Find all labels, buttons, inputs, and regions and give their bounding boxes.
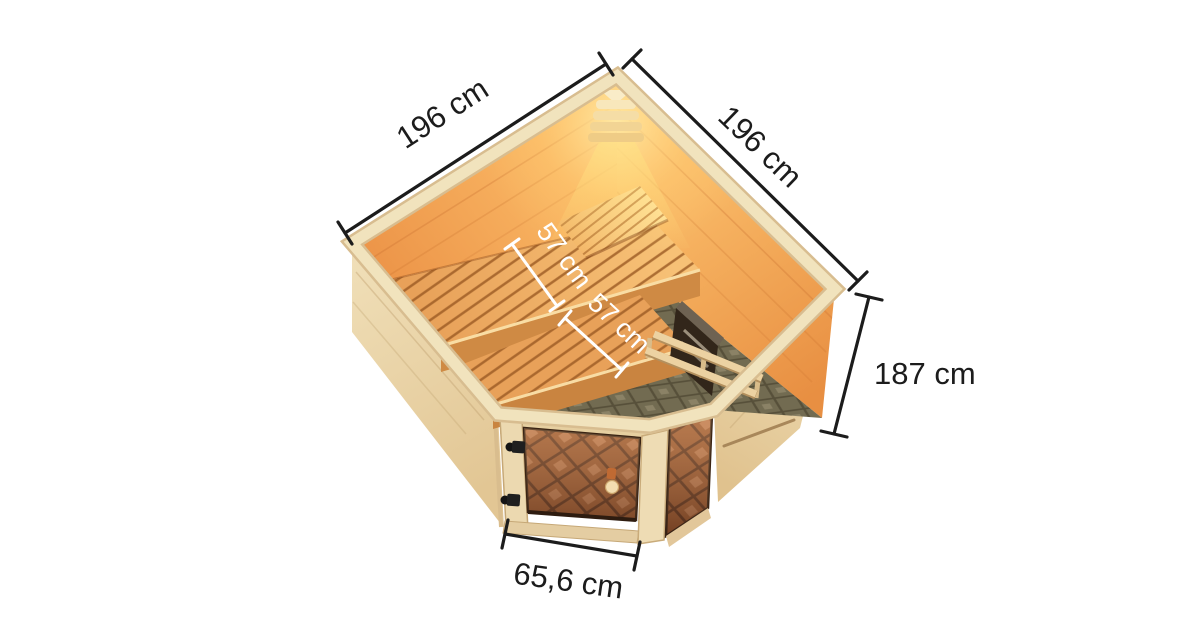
dimension-label-height: 187 cm [874,356,976,391]
corner-post [638,430,668,544]
dimension-line [834,297,869,434]
corner-glass-panel [666,412,712,547]
dimension-outer-height: 187 cm [821,294,976,437]
sauna-dimension-diagram: 196 cm 196 cm 187 cm 65,6 cm 57 cm 57 cm [0,0,1200,629]
lamp-slat [588,133,644,142]
diagram-canvas: 196 cm 196 cm 187 cm 65,6 cm 57 cm 57 cm [0,0,1200,629]
rail-post [756,380,758,398]
door-hinge-bottom [501,494,521,507]
lamp-slat [593,111,639,120]
front-elements [500,412,712,547]
lamp-slat [596,100,636,109]
dimension-tick [599,53,613,75]
lamp-slat [590,122,642,131]
dimension-label-door-width: 65,6 cm [511,556,625,606]
dimension-label-width-left: 196 cm [390,71,494,156]
door-glass-tint [524,428,640,520]
door-threshold [503,521,639,543]
